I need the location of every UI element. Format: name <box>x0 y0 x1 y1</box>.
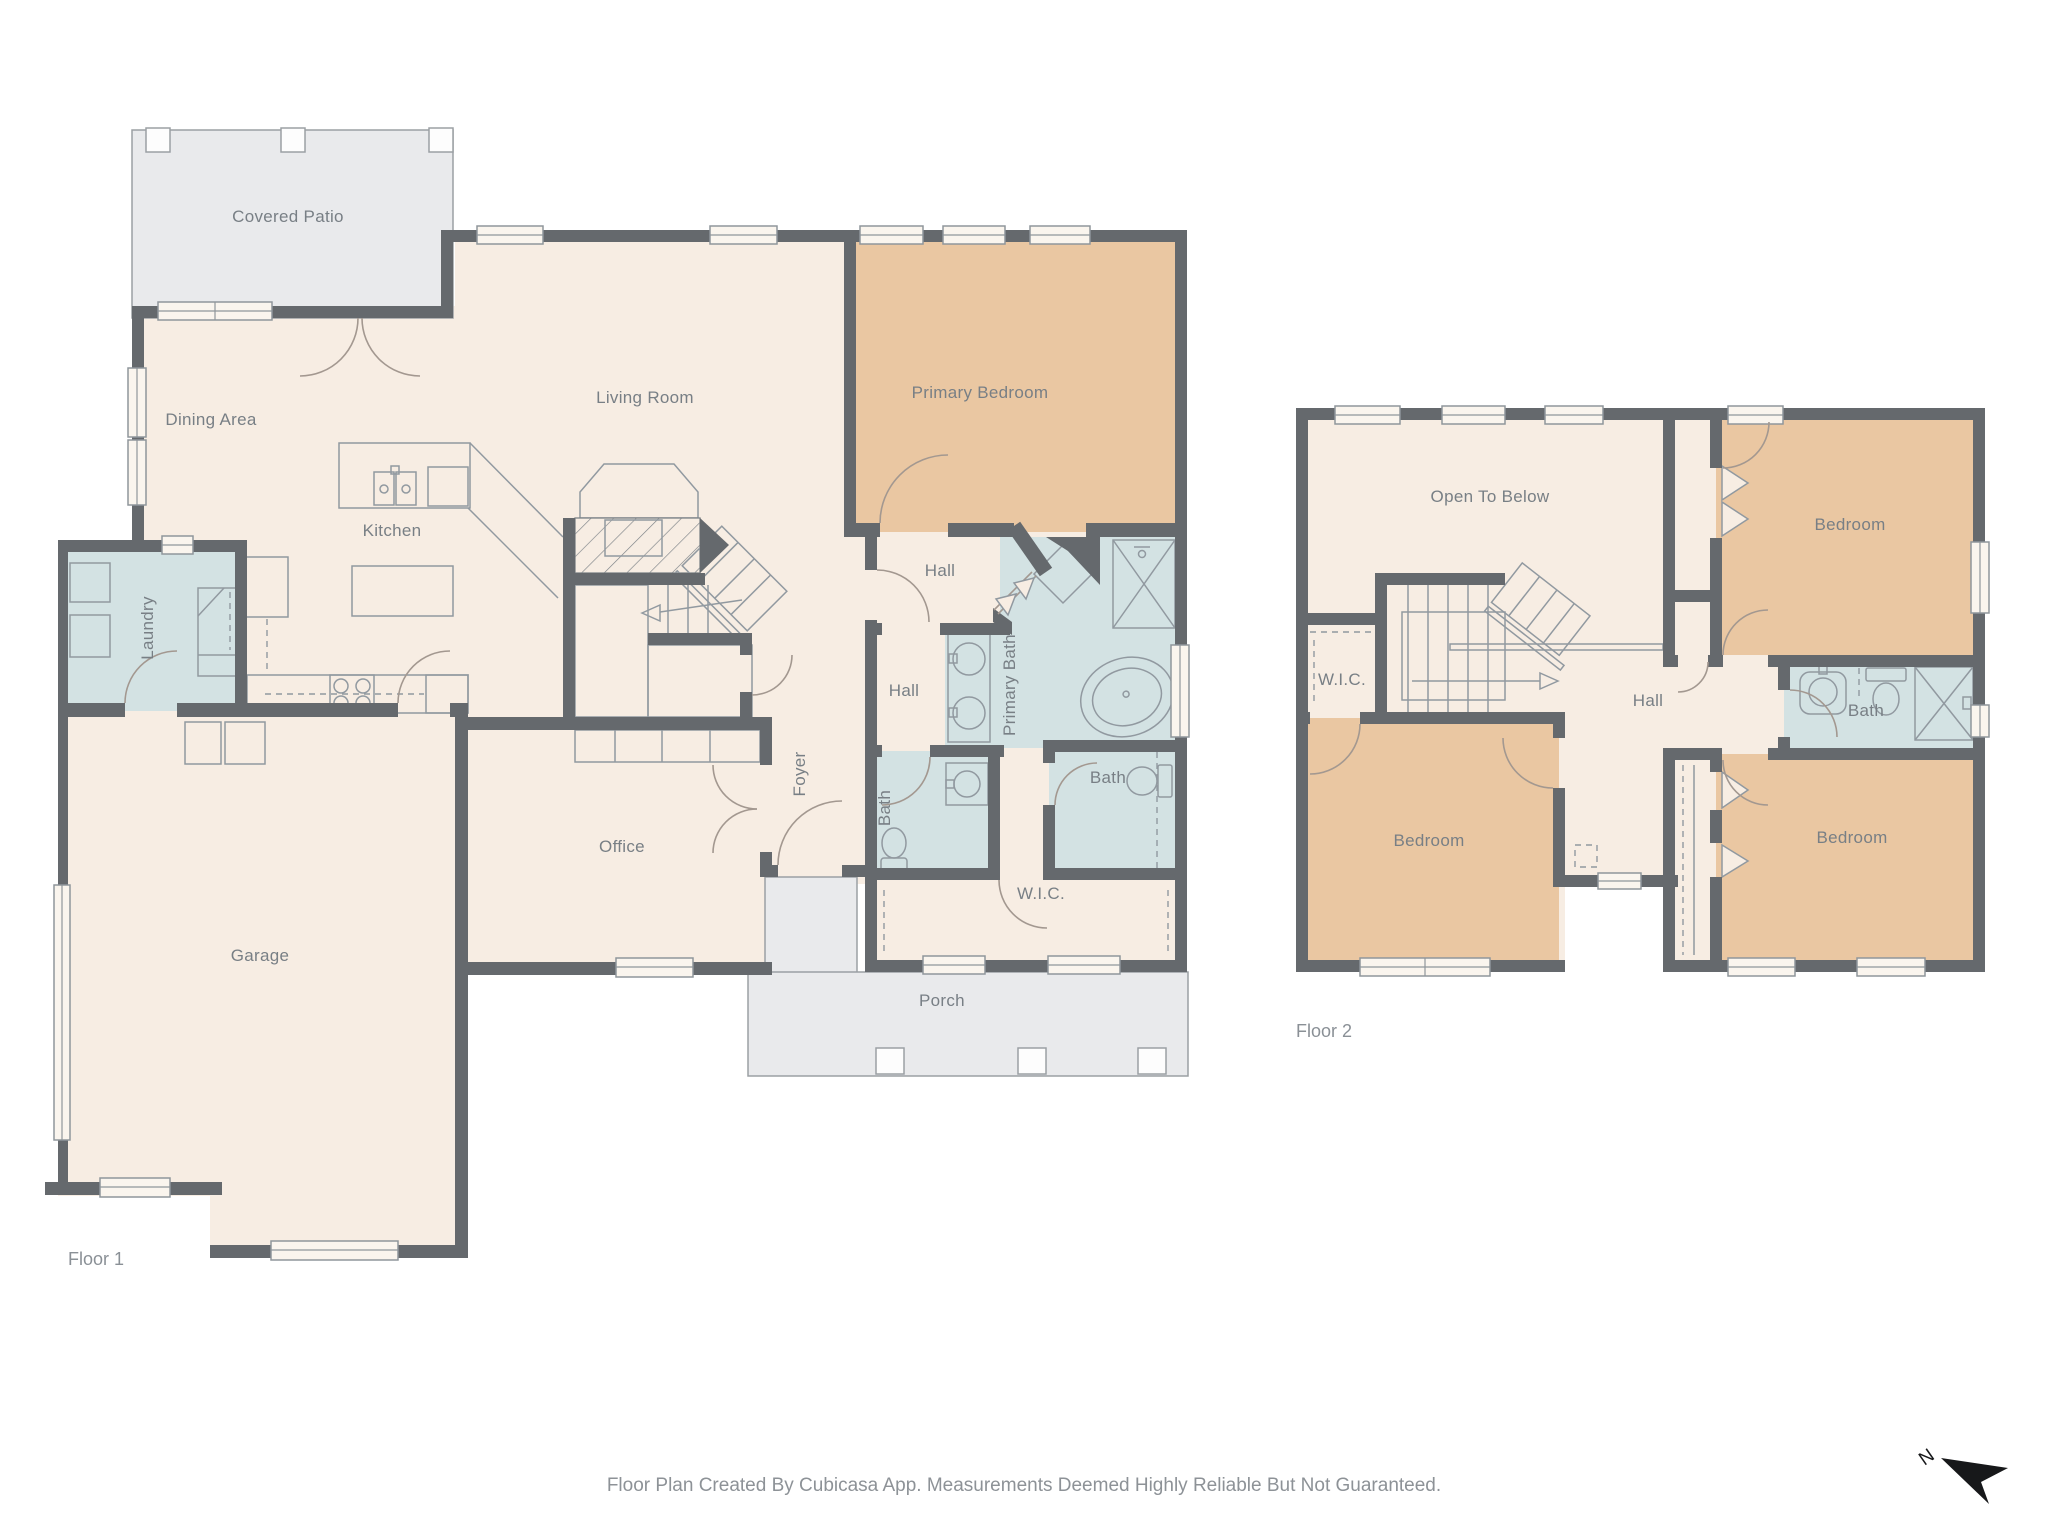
window <box>128 440 146 505</box>
floor2-plan: Open To Below W.I.C. Hall Bedroom Bath B… <box>1296 406 1989 1041</box>
window <box>710 226 777 244</box>
porch-entry-slab <box>765 877 857 974</box>
room-label-garage: Garage <box>231 946 290 965</box>
floor1-plan: Covered Patio Dining Area Living Room Pr… <box>38 128 1189 1269</box>
window <box>923 956 985 974</box>
north-arrow-icon <box>1941 1458 2008 1504</box>
garage-door-window <box>271 1241 398 1260</box>
floor-plan-page: Covered Patio Dining Area Living Room Pr… <box>0 0 2048 1536</box>
room-label-wic: W.I.C. <box>1017 884 1065 903</box>
room-label-bedroom-bl: Bedroom <box>1393 831 1464 850</box>
window <box>1360 958 1490 976</box>
stair-landing <box>580 464 698 518</box>
room-label-open-to-below: Open To Below <box>1431 487 1550 506</box>
patio-post <box>146 128 170 152</box>
room-label-kitchen: Kitchen <box>363 521 422 540</box>
window <box>1442 406 1505 424</box>
porch-post <box>876 1048 904 1074</box>
room-label-porch: Porch <box>919 991 965 1010</box>
room-label-bath-right: Bath <box>1090 768 1126 787</box>
patio-post <box>429 128 453 152</box>
window <box>162 536 193 554</box>
room-label-dining-area: Dining Area <box>165 410 256 429</box>
window <box>1857 958 1925 976</box>
north-compass: N <box>1915 1445 2008 1504</box>
room-label-bedroom-tr: Bedroom <box>1814 515 1885 534</box>
room-label-bath2: Bath <box>1848 701 1884 720</box>
footer-disclaimer: Floor Plan Created By Cubicasa App. Meas… <box>607 1475 1441 1496</box>
porch-post <box>1138 1048 1166 1074</box>
room-label-primary-bedroom: Primary Bedroom <box>912 383 1049 402</box>
room-label-primary-bath: Primary Bath <box>1000 634 1019 736</box>
window <box>1335 406 1400 424</box>
room-label-wic2: W.I.C. <box>1318 670 1366 689</box>
room-label-covered-patio: Covered Patio <box>232 207 344 226</box>
room-label-bedroom-br: Bedroom <box>1816 828 1887 847</box>
room-label-hall2: Hall <box>1633 691 1664 710</box>
floor1-label: Floor 1 <box>68 1249 124 1269</box>
window <box>1598 873 1641 889</box>
window <box>158 302 272 320</box>
patio-post <box>281 128 305 152</box>
floor-plan-drawing: Covered Patio Dining Area Living Room Pr… <box>0 0 2048 1536</box>
room-label-hall-lower: Hall <box>889 681 920 700</box>
room-label-bath-left: Bath <box>875 790 894 826</box>
floor2-notch-mask <box>1565 887 1663 979</box>
bedroom-br-floor <box>1716 754 1973 966</box>
window <box>1971 705 1989 737</box>
window <box>1728 958 1795 976</box>
room-label-office: Office <box>599 837 645 856</box>
porch-slab <box>748 972 1188 1076</box>
window <box>616 958 693 977</box>
window <box>1971 542 1989 613</box>
room-label-foyer: Foyer <box>790 751 809 796</box>
window <box>477 226 543 244</box>
window <box>860 226 923 244</box>
garage-floor <box>58 717 467 1258</box>
window <box>1728 406 1783 424</box>
room-label-hall-upper: Hall <box>925 561 956 580</box>
window <box>100 1178 170 1197</box>
north-label: N <box>1915 1445 1938 1470</box>
bath-right-floor <box>1049 746 1175 880</box>
window <box>1171 645 1189 737</box>
window <box>1048 956 1120 974</box>
window <box>1545 406 1603 424</box>
porch-post <box>1018 1048 1046 1074</box>
window <box>1030 226 1090 244</box>
room-label-living-room: Living Room <box>596 388 694 407</box>
window <box>128 368 146 437</box>
window <box>54 885 70 1140</box>
floor2-label: Floor 2 <box>1296 1021 1352 1041</box>
room-label-laundry: Laundry <box>138 596 157 660</box>
primary-bath-floor-lower <box>945 625 1175 748</box>
stair-upper-flight-hatched <box>575 518 700 573</box>
window <box>943 226 1005 244</box>
